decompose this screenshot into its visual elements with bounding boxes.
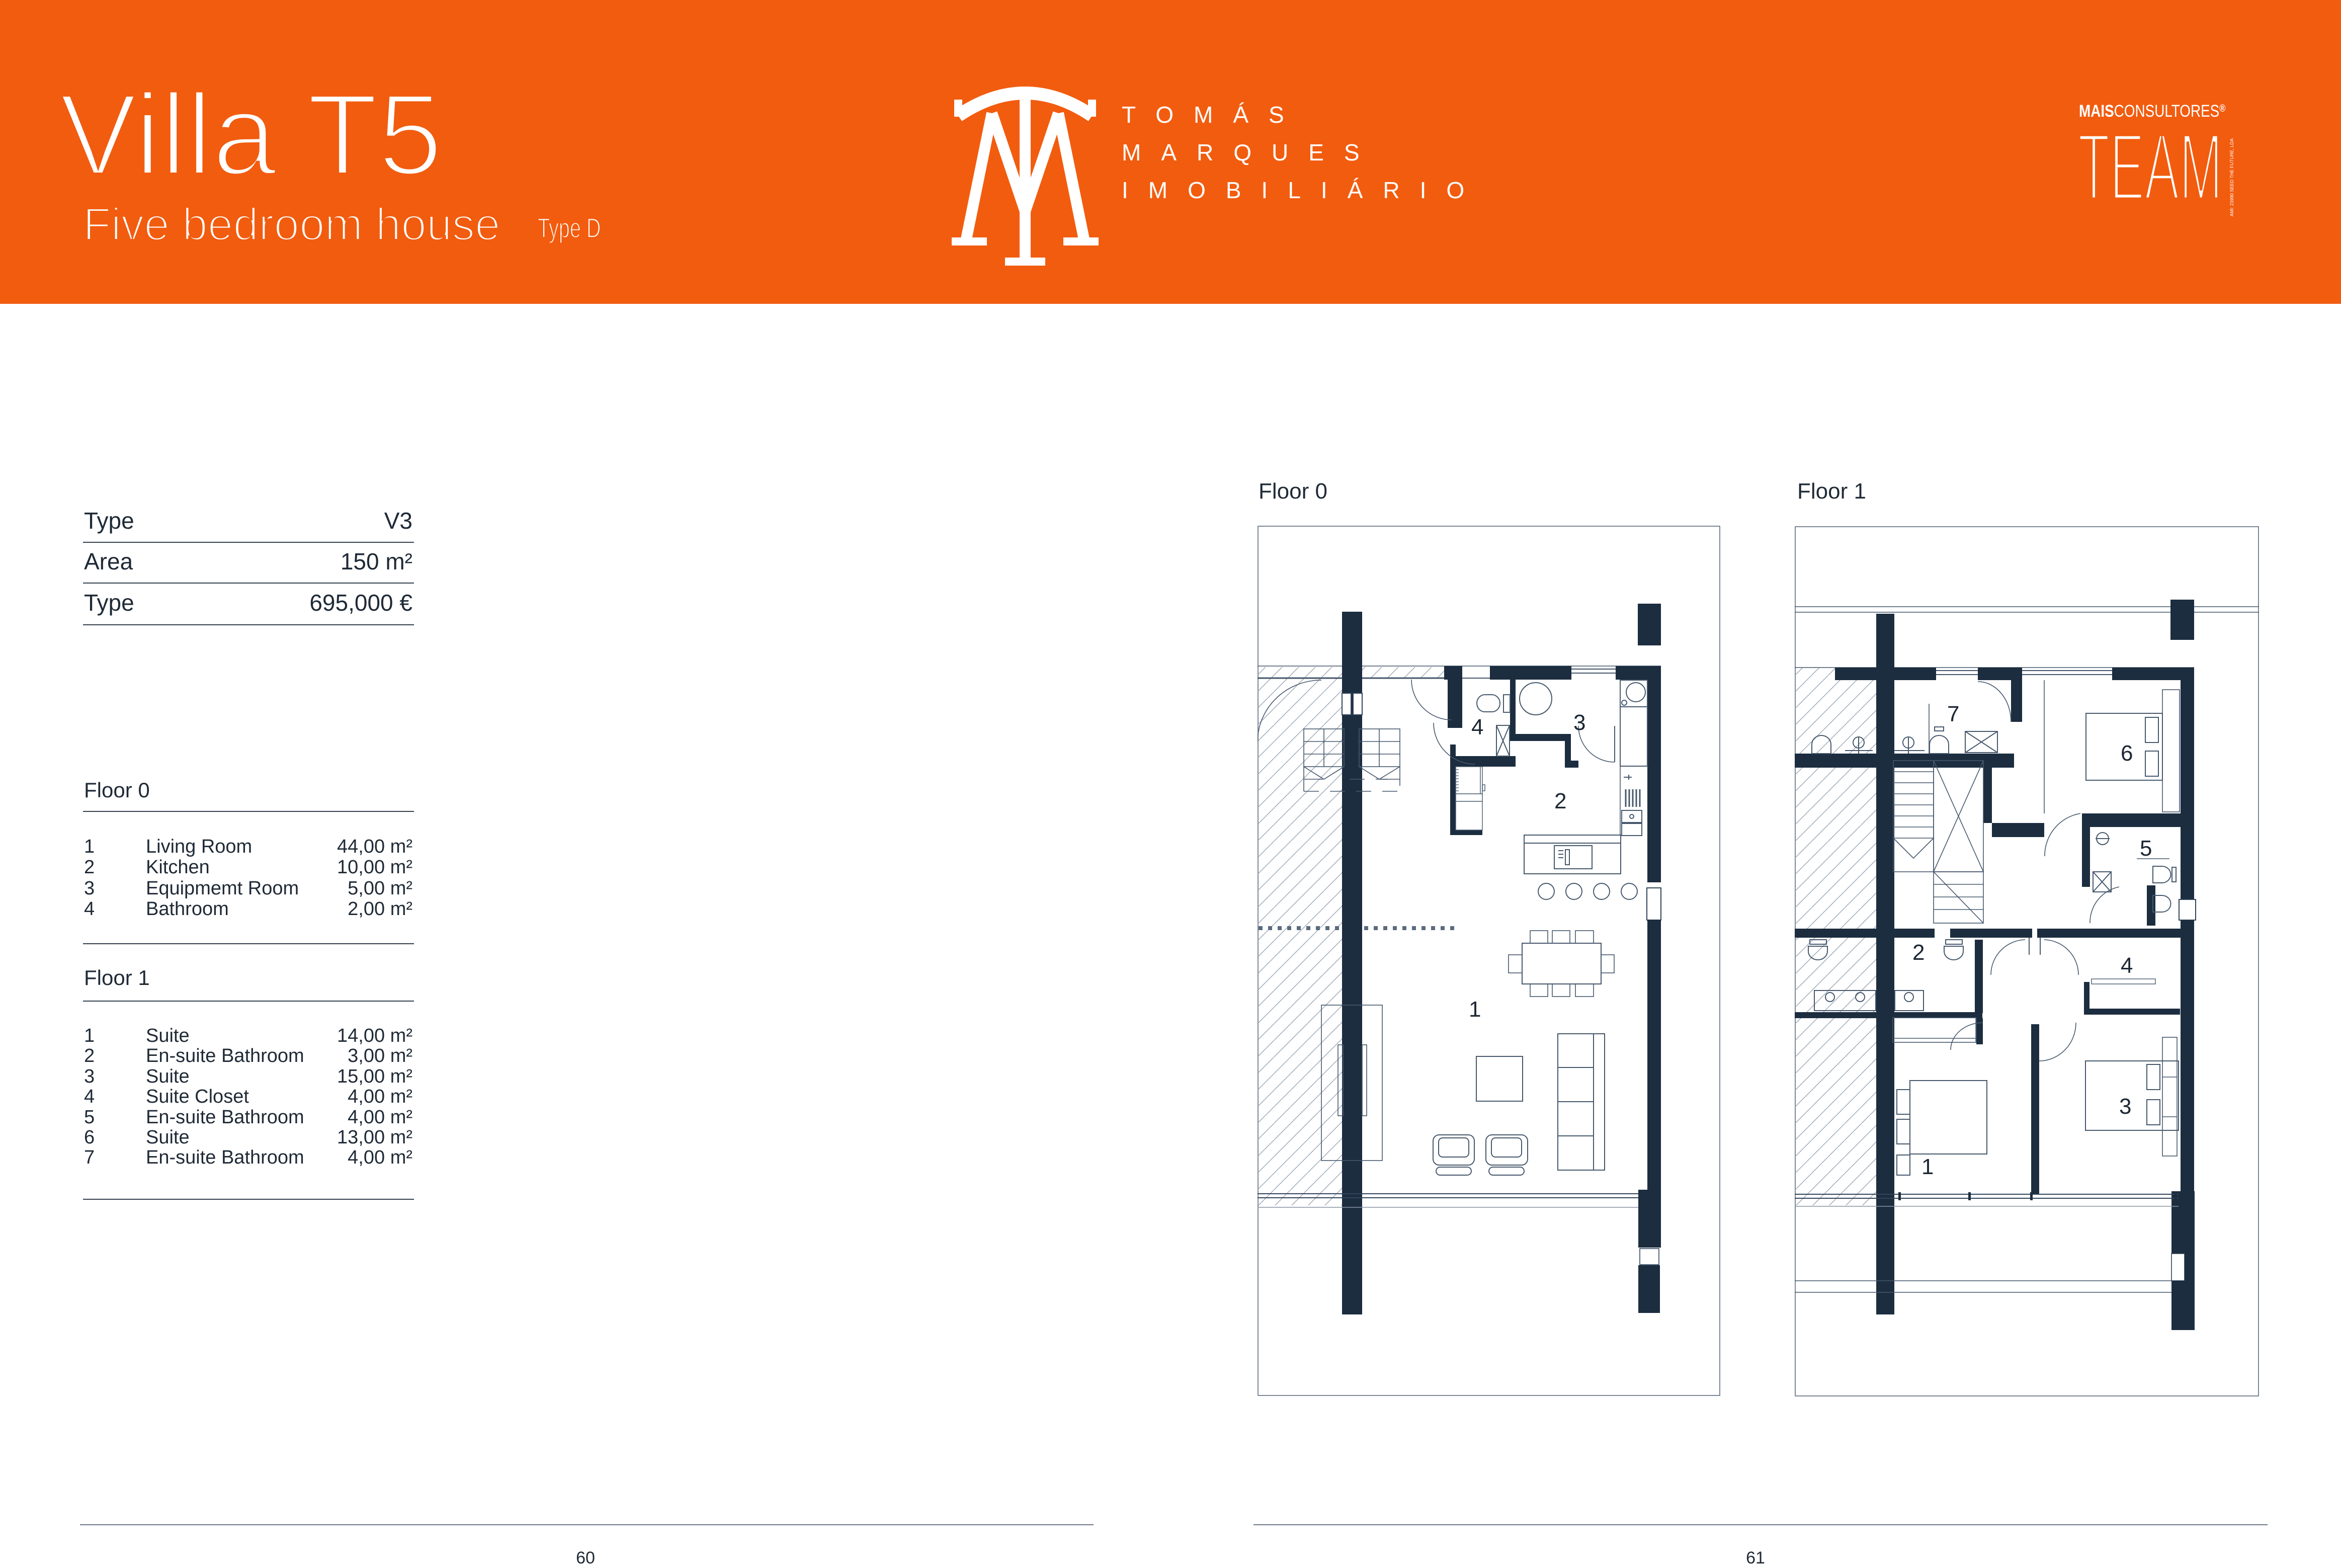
svg-text:4: 4 <box>1471 715 1483 739</box>
svg-text:TOMÁS: TOMÁS <box>1122 102 1304 128</box>
svg-text:1: 1 <box>1921 1154 1934 1179</box>
svg-text:4: 4 <box>2121 953 2133 978</box>
svg-text:6: 6 <box>2121 741 2133 766</box>
svg-text:IMOBILIÁRIO: IMOBILIÁRIO <box>1122 177 1484 203</box>
svg-text:3: 3 <box>2119 1094 2131 1119</box>
svg-text:5: 5 <box>2140 836 2152 861</box>
svg-text:2: 2 <box>1912 940 1925 965</box>
svg-text:TEAM: TEAM <box>2078 114 2223 220</box>
svg-text:2: 2 <box>1554 789 1566 813</box>
svg-text:7: 7 <box>1947 702 1959 726</box>
svg-text:1: 1 <box>1469 997 1481 1022</box>
svg-text:MARQUES: MARQUES <box>1122 139 1380 166</box>
svg-text:AMI: 23990 SEED THE FUTURE, L: AMI: 23990 SEED THE FUTURE, LDA <box>2229 138 2234 216</box>
svg-text:3: 3 <box>1573 710 1585 735</box>
